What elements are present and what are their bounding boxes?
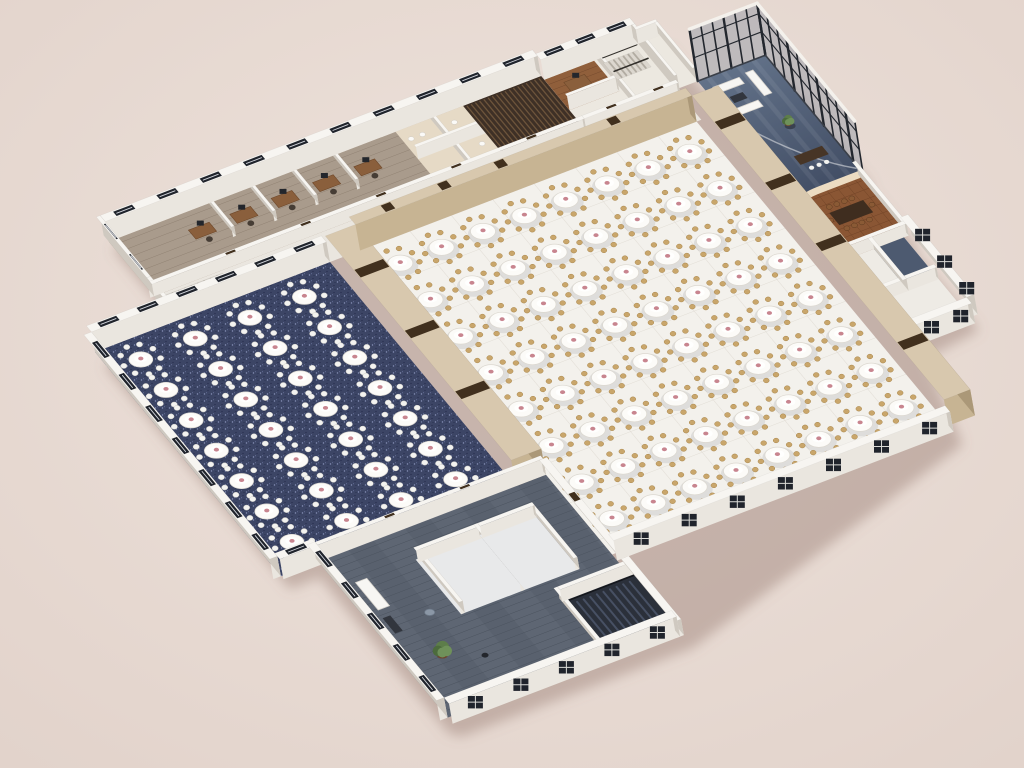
chair bbox=[844, 226, 850, 231]
window-icon bbox=[682, 514, 697, 526]
chair bbox=[809, 166, 814, 170]
window-icon bbox=[959, 282, 974, 294]
fixture bbox=[451, 120, 457, 124]
chair bbox=[851, 223, 857, 228]
window-icon bbox=[922, 422, 937, 434]
isometric-floorplan bbox=[0, 0, 1024, 768]
fixture bbox=[408, 137, 414, 141]
window-icon bbox=[874, 440, 889, 452]
fixture bbox=[419, 132, 425, 136]
window-icon bbox=[730, 496, 745, 508]
chair bbox=[866, 217, 872, 222]
window-icon bbox=[778, 477, 793, 489]
window-icon bbox=[468, 696, 483, 708]
side-table bbox=[482, 653, 489, 658]
window-icon bbox=[826, 459, 841, 471]
window-icon bbox=[937, 255, 952, 267]
window-icon bbox=[924, 321, 939, 333]
window-icon bbox=[513, 679, 528, 691]
side-table bbox=[425, 609, 435, 615]
window-icon bbox=[604, 644, 619, 656]
chair bbox=[817, 163, 822, 167]
window-icon bbox=[559, 661, 574, 673]
chair bbox=[826, 205, 832, 210]
window-icon bbox=[650, 626, 665, 638]
window-icon bbox=[915, 229, 930, 241]
window-icon bbox=[953, 310, 968, 322]
chair bbox=[849, 196, 855, 201]
chair bbox=[841, 199, 847, 204]
chair bbox=[859, 220, 865, 225]
chair bbox=[869, 202, 875, 207]
chair bbox=[824, 160, 829, 164]
floorplan-render-canvas bbox=[0, 0, 1024, 768]
fixture bbox=[479, 141, 485, 145]
chair bbox=[834, 202, 840, 207]
window-icon bbox=[634, 532, 649, 544]
